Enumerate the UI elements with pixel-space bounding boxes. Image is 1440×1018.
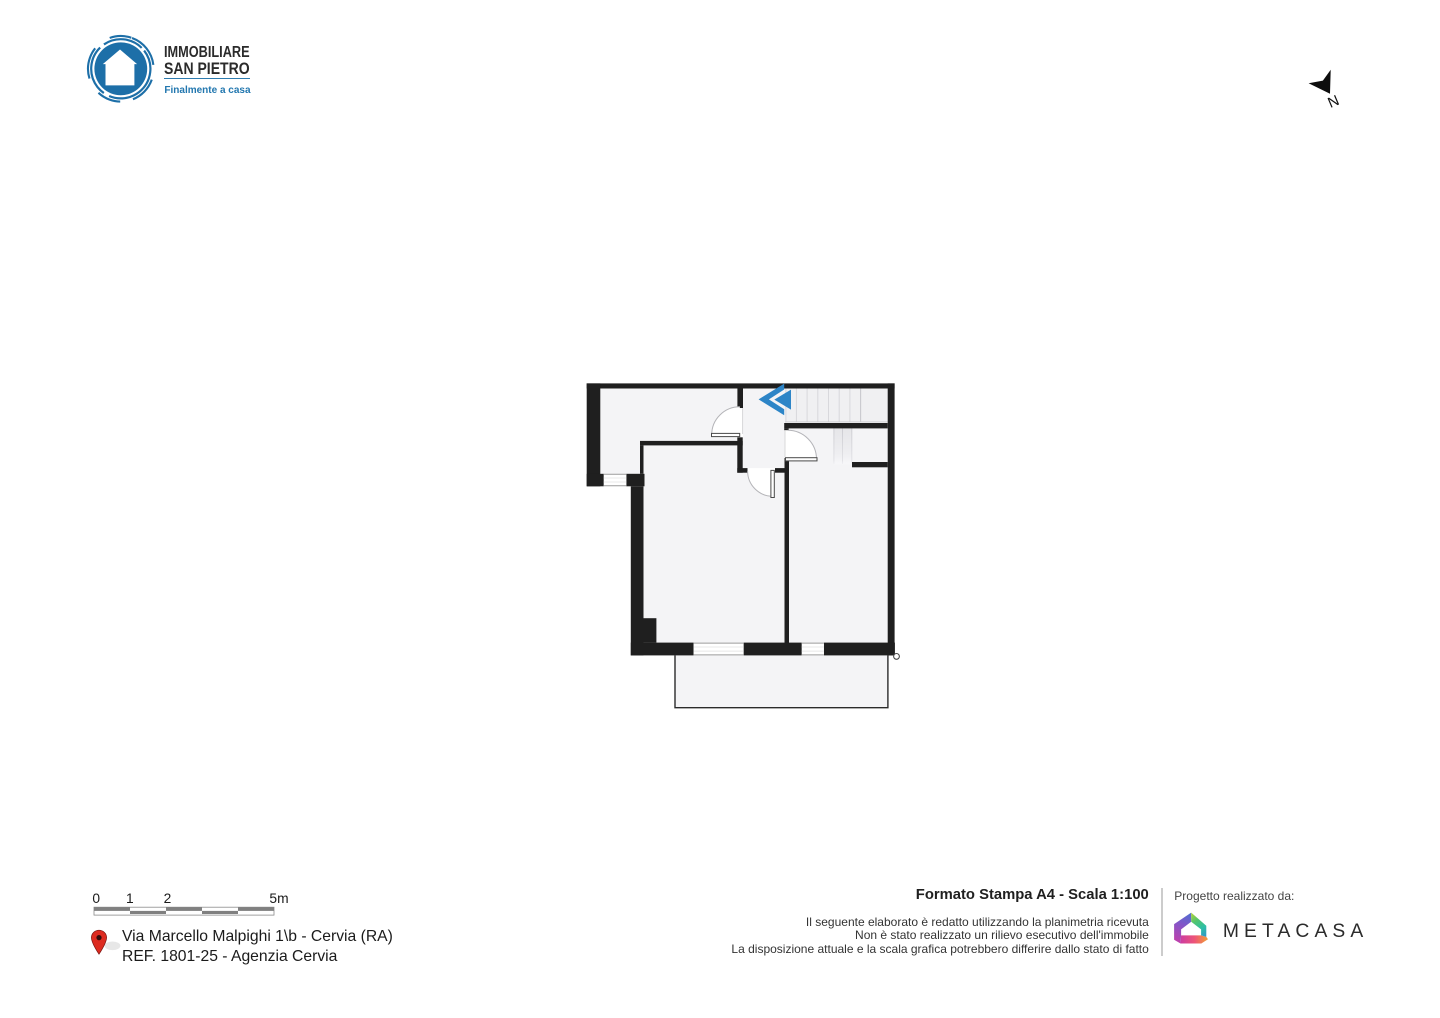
- svg-text:1: 1: [126, 891, 134, 906]
- svg-text:0: 0: [92, 891, 100, 906]
- svg-text:N: N: [1326, 93, 1342, 112]
- svg-text:5m: 5m: [269, 891, 288, 906]
- svg-text:2: 2: [164, 891, 172, 906]
